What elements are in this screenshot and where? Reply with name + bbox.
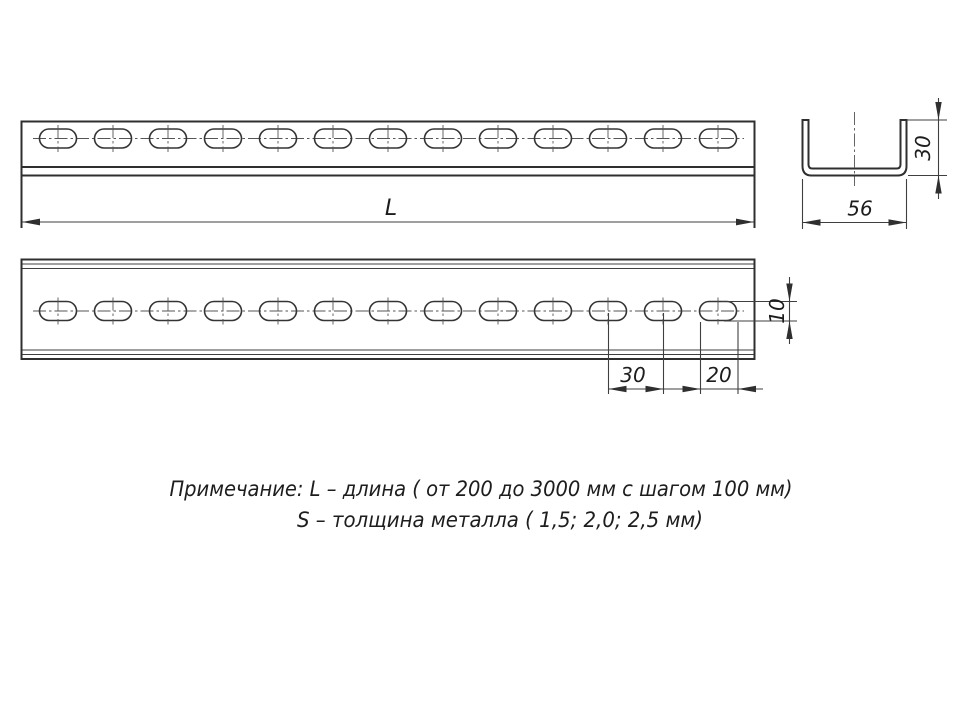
note-line-2: S – толщина металла ( 1,5; 2,0; 2,5 мм) [297,508,703,532]
dimension-section-width: 56 [803,179,907,229]
arrow-up [935,176,941,194]
section-width-label: 56 [847,197,872,221]
dimension-section-height: 30 [907,98,948,199]
slot-pitch-label: 30 [620,363,645,387]
section-height-label: 30 [911,135,935,160]
notes-block: Примечание: L – длина ( от 200 до 3000 м… [170,477,793,532]
slot-length-label: 20 [706,363,731,387]
arrow-left [803,219,821,225]
arrow-down [935,102,941,120]
slot-width-label: 10 [765,298,789,323]
arrow-left [22,219,40,226]
arrow-right [683,386,701,392]
dimension-slot-width: 10 [721,277,797,344]
arrow-right [736,219,754,226]
dimension-length: L [22,196,754,225]
section-view [803,112,907,186]
arrow-right [889,219,907,225]
drawing-canvas: L 30 56 [0,0,960,720]
note-line-1: Примечание: L – длина ( от 200 до 3000 м… [170,477,793,501]
dimension-slot-pitch: 30 [609,313,664,394]
arrow-left [738,386,756,392]
drawing-page: L 30 56 [0,0,960,720]
length-label: L [385,196,397,221]
front-view [22,260,755,360]
arrow-right [646,386,664,392]
